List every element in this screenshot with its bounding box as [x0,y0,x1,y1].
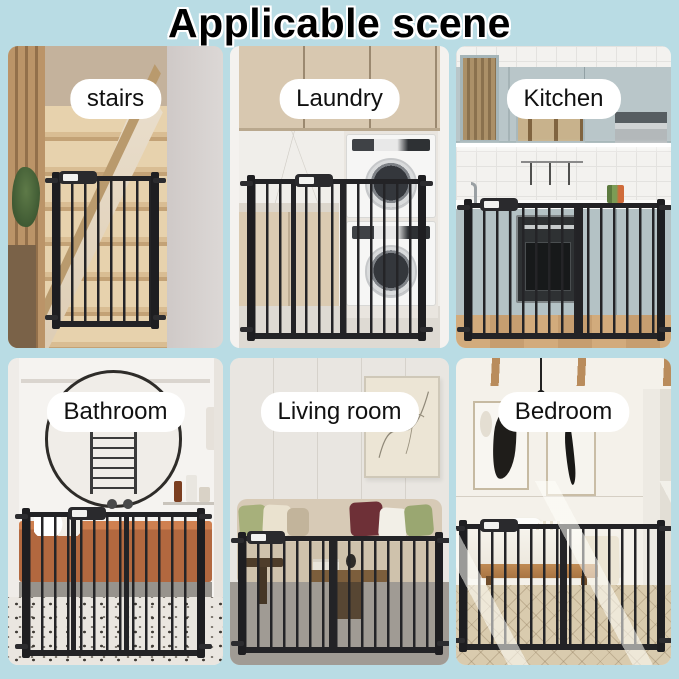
gate-right-post [657,199,665,341]
gate-latch [480,519,518,532]
scene-label-stairs: stairs [70,79,161,119]
washer-control-panel [352,139,429,151]
gate-right-post [418,175,426,341]
gate-left-post [464,199,472,341]
scene-panel-laundry: Laundry [230,46,449,348]
gate-right-post [435,532,443,655]
gate-door-frame [71,512,76,656]
counter-items [607,185,624,203]
gate-latch [247,531,285,544]
gate-bars [58,178,153,325]
bathroom-right-wall [214,358,223,597]
scene-label-kitchen: Kitchen [506,79,620,119]
gate-bottom-rail [467,333,663,339]
safety-gate [25,512,201,656]
scene-label-bedroom: Bedroom [498,392,629,432]
gate-middle-post [560,524,567,650]
wall-trim-line [456,496,671,497]
gate-right-post [197,508,205,658]
gate-latch [59,171,97,184]
safety-gate [55,176,156,327]
scene-grid: stairs Laundry [8,46,671,665]
gate-top-rail [25,512,201,517]
gate-left-post [52,172,60,329]
scene-panel-bathroom: Bathroom [8,358,223,665]
bathroom-left-wall [8,358,19,597]
scene-label-bathroom: Bathroom [46,392,184,432]
gate-left-post [238,532,246,655]
gate-bars [244,538,437,651]
bathroom-shelf [163,502,217,505]
gate-right-post [657,520,665,652]
gate-right-post [151,172,159,329]
gate-latch [68,507,106,520]
page-title: Applicable scene [0,0,679,46]
gate-bottom-rail [241,647,440,653]
stairs-doorway [8,245,36,348]
laundry-left-wall [230,46,239,348]
scene-label-living-room: Living room [260,392,418,432]
kitchen-glass-cabinet [460,55,499,143]
safety-gate [250,179,423,339]
soap-pump [186,475,197,503]
safety-gate [467,203,663,339]
hanging-utensils [521,161,583,185]
gate-left-post [459,520,467,652]
scene-label-laundry: Laundry [279,79,400,119]
gate-door-frame [291,179,296,339]
gate-left-post [22,508,30,658]
scene-panel-living-room: Living room [230,358,449,665]
gate-door-frame [340,179,345,339]
gate-bottom-rail [25,650,201,656]
safety-gate [241,536,440,653]
gate-top-rail [250,179,423,184]
stairs-right-wall [167,46,223,348]
gate-latch [295,174,333,187]
gate-bottom-rail [250,333,423,339]
gate-door-frame [124,512,129,656]
under-cabinet-light [456,143,671,147]
gate-middle-post [576,203,583,339]
gate-bottom-rail [55,321,156,327]
gate-bars [28,514,198,654]
laundry-right-wall [440,46,449,348]
kitchen-faucet [471,182,477,203]
ceiling-beams [456,358,671,386]
bathroom-jar [199,487,210,502]
scene-panel-stairs: stairs [8,46,223,348]
gate-bars [253,181,420,337]
scene-panel-kitchen: Kitchen [456,46,671,348]
gate-middle-post [329,536,336,653]
amber-bottle [174,481,183,502]
gate-latch [480,198,518,211]
scene-panel-bedroom: Bedroom [456,358,671,665]
gate-bars [470,205,660,337]
range-hood [615,112,667,142]
tan-pillow [287,508,309,536]
safety-gate [462,524,662,650]
green-pillow [404,504,435,537]
gate-left-post [247,175,255,341]
